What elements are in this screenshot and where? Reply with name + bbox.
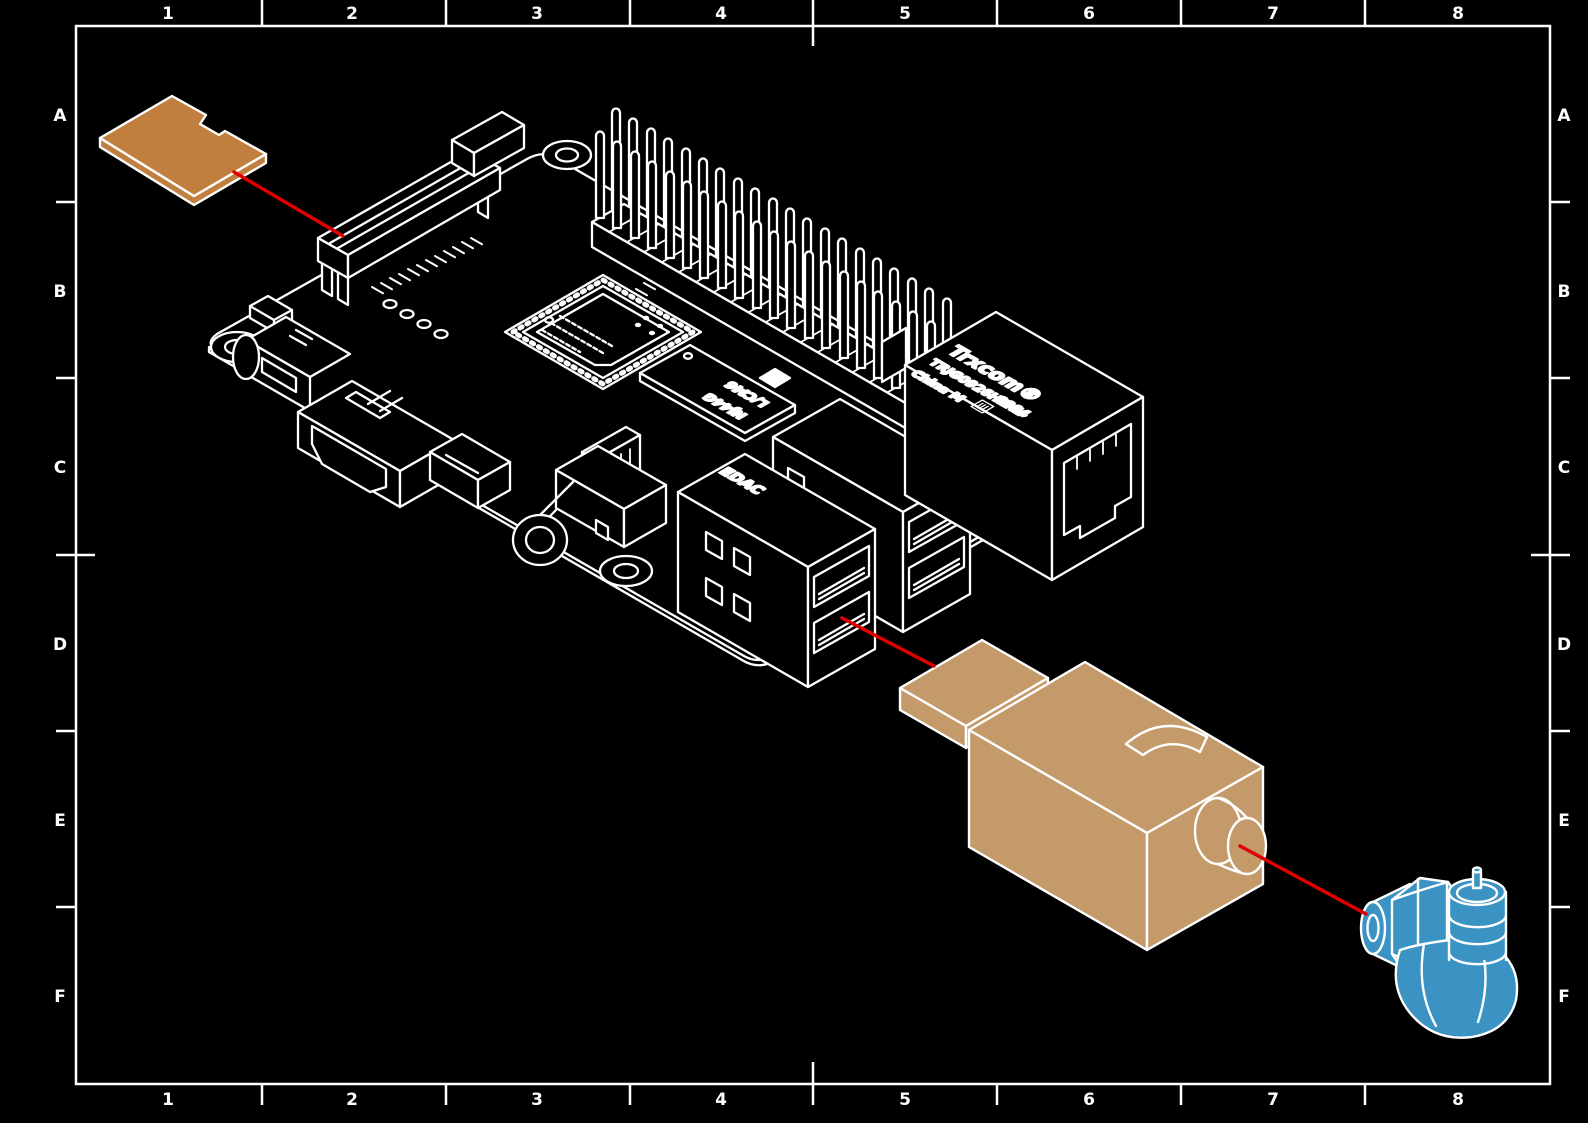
grid-col-label: 6	[1083, 4, 1095, 24]
grid-col-label: 7	[1267, 4, 1279, 24]
grid-col-label: 2	[346, 4, 358, 24]
grid-col-label: 1	[162, 1090, 174, 1110]
grid-col-label: 8	[1452, 1090, 1464, 1110]
grid-row-label: E	[54, 811, 66, 831]
exploded-assembly-drawing: 1 2 3 4 5 6 7 8 1 2 3 4 5 6 7 8 A B C D …	[0, 0, 1588, 1123]
grid-ticks-top	[262, 0, 1365, 46]
usb-dongle	[900, 640, 1266, 950]
adapter-sma-male-plug	[1449, 868, 1506, 965]
leader-sd-card-to-slot	[234, 172, 343, 236]
grid-col-label: 7	[1267, 1090, 1279, 1110]
grid-col-label: 6	[1083, 1090, 1095, 1110]
grid-col-label: 5	[899, 1090, 911, 1110]
grid-col-label: 3	[531, 1090, 543, 1110]
grid-row-label: A	[1557, 106, 1571, 126]
grid-col-label: 4	[715, 4, 727, 24]
grid-row-label: C	[1558, 458, 1570, 478]
micro-sd-card	[100, 96, 266, 205]
grid-row-label: A	[53, 106, 67, 126]
mounting-hole	[600, 556, 652, 586]
mounting-hole	[543, 141, 591, 169]
grid-row-label: F	[54, 987, 66, 1007]
single-board-computer: NJ44G L/CM6	[209, 109, 1143, 688]
grid-row-label: E	[1558, 811, 1570, 831]
grid-row-label: C	[54, 458, 66, 478]
grid-col-label: 4	[715, 1090, 727, 1110]
grid-row-label: D	[1557, 635, 1571, 655]
grid-col-label: 8	[1452, 4, 1464, 24]
grid-row-label: D	[53, 635, 67, 655]
grid-row-label: B	[54, 282, 67, 302]
grid-col-label: 3	[531, 4, 543, 24]
grid-col-label: 5	[899, 4, 911, 24]
grid-col-label: 1	[162, 4, 174, 24]
grid-col-label: 2	[346, 1090, 358, 1110]
grid-row-label: B	[1558, 282, 1571, 302]
sma-right-angle-adapter	[1361, 868, 1517, 1038]
grid-row-label: F	[1558, 987, 1570, 1007]
